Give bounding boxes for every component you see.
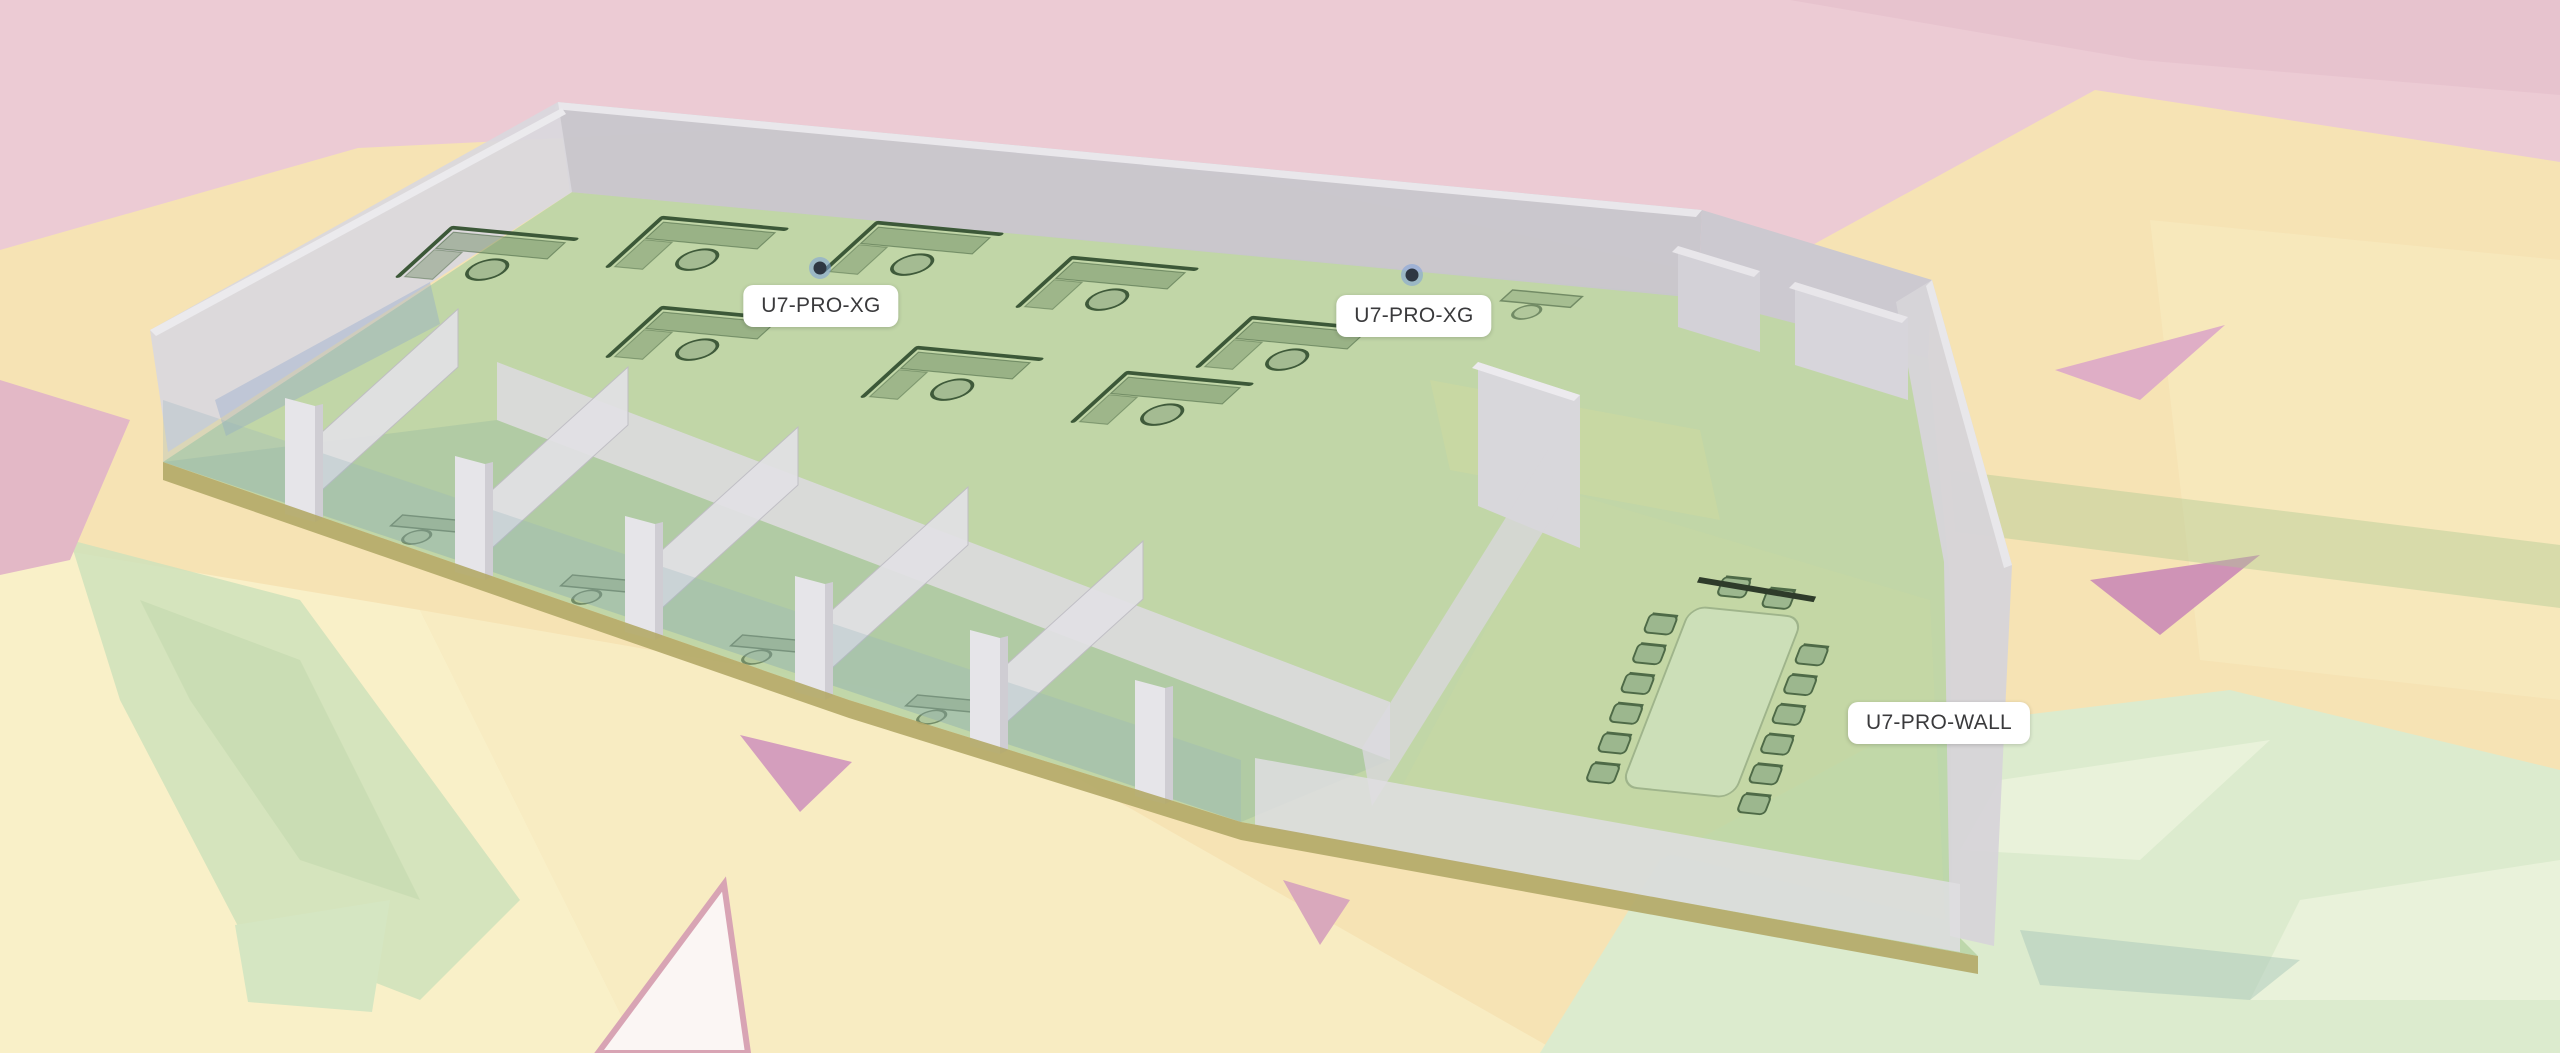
ap-label-u7-pro-wall[interactable]: U7-PRO-WALL bbox=[1848, 702, 2030, 744]
access-point-marker[interactable] bbox=[1401, 264, 1423, 286]
scene-svg bbox=[0, 0, 2560, 1053]
ap-label-u7-pro-xg-2[interactable]: U7-PRO-XG bbox=[1336, 295, 1491, 337]
coverage-3d-viewport[interactable]: U7-PRO-XG U7-PRO-XG U7-PRO-WALL bbox=[0, 0, 2560, 1053]
access-point-marker[interactable] bbox=[809, 257, 831, 279]
ap-label-u7-pro-xg-1[interactable]: U7-PRO-XG bbox=[743, 285, 898, 327]
